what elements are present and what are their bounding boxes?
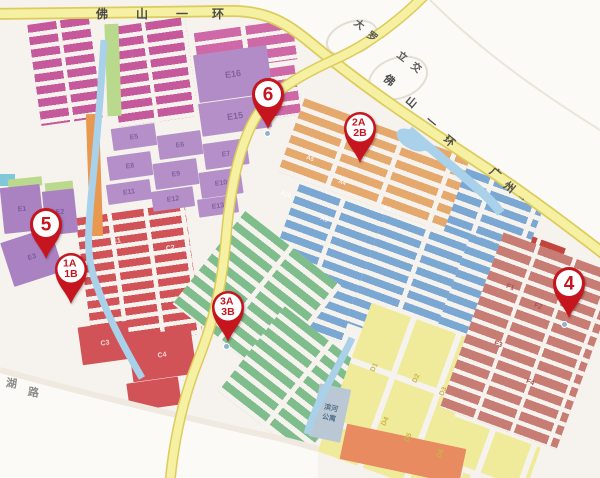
block-e10: E10 — [198, 167, 243, 199]
svg-text:3A 3B: 3A 3B — [220, 296, 236, 319]
block-red-lower — [126, 377, 181, 412]
block-c3: C3 — [78, 321, 133, 366]
marker-4[interactable]: 4 — [549, 263, 589, 319]
block-e11: E11 — [106, 179, 152, 205]
interchange-label-char1: 大 — [351, 15, 368, 33]
bus-stop-icon — [561, 321, 568, 328]
svg-text:6: 6 — [263, 85, 274, 106]
road-label-diag-ring-char2: 山 — [402, 92, 421, 111]
block-e7: E7 — [202, 138, 249, 170]
bus-stop-icon — [223, 343, 230, 350]
bus-stop-icon — [264, 130, 271, 137]
marker-3ab[interactable]: 3A 3B — [208, 287, 248, 343]
block-e9: E9 — [152, 158, 199, 190]
block-label-c4: C4 — [157, 351, 167, 359]
pin-label: 6 — [263, 85, 274, 106]
marker-1ab[interactable]: 1A 1B — [51, 249, 91, 305]
block-label-e12: E12 — [166, 195, 179, 204]
lake-road-label-char2: 路 — [27, 383, 40, 400]
block-e12: E12 — [151, 186, 195, 212]
zoning-map: E16 E15 E5 E6 E7 E8 E9 E10 E11 E12 E13 E… — [0, 0, 600, 478]
block-label-a10: A10 — [279, 190, 291, 199]
pin-label: 5 — [41, 215, 52, 236]
svg-text:1A 1B: 1A 1B — [63, 258, 79, 281]
marker-2ab[interactable]: 2A 2B — [340, 108, 380, 164]
road-label-top-ring-char3: 一 — [176, 5, 188, 22]
block-label-e10: E10 — [214, 179, 227, 188]
block-label-c2: C2 — [166, 244, 176, 252]
binhe-apartment-label-line2: 公寓 — [321, 412, 337, 425]
block-label-c1: C1 — [112, 237, 122, 245]
svg-text:5: 5 — [41, 215, 52, 236]
block-label-e11: E11 — [123, 188, 136, 197]
road-label-diag-ring-char1: 佛 — [380, 70, 399, 89]
road-label-top-ring-char4: 环 — [212, 5, 224, 22]
road-label-diag-ring-char3: 一 — [422, 112, 441, 131]
block-e6: E6 — [157, 130, 204, 160]
road-label-top-ring-char1: 佛 — [96, 5, 108, 22]
interchange-label-char3: 立 — [394, 47, 411, 65]
block-label-e8: E8 — [125, 162, 134, 170]
block-label-c3: C3 — [100, 339, 110, 347]
svg-text:2A 2B: 2A 2B — [352, 117, 368, 140]
block-label-e13: E13 — [211, 202, 224, 211]
road-label-top-ring-char2: 山 — [136, 5, 148, 22]
lake-road-label-char1: 湖 — [5, 374, 18, 391]
block-e5: E5 — [111, 123, 158, 151]
pin-label: 4 — [564, 274, 575, 295]
block-label-e15: E15 — [226, 109, 243, 121]
pin-label-line2: 3B — [221, 306, 235, 318]
block-label-e16: E16 — [224, 68, 241, 80]
block-label-e7: E7 — [221, 150, 230, 158]
block-label-e9: E9 — [171, 170, 180, 178]
district-pink-northwest-a — [27, 16, 105, 126]
marker-6[interactable]: 6 — [248, 74, 288, 130]
interchange-label-char4: 交 — [408, 58, 425, 76]
interchange-label-char2: 罗 — [364, 27, 381, 45]
svg-text:4: 4 — [564, 274, 575, 295]
pin-label-line2: 2B — [353, 127, 367, 139]
pin-label-line2: 1B — [64, 268, 78, 280]
block-c4: C4 — [127, 328, 197, 382]
block-label-e5: E5 — [129, 133, 138, 141]
block-e8: E8 — [107, 151, 154, 181]
interchange-ramp-3 — [430, 0, 600, 130]
block-label-e6: E6 — [175, 141, 184, 149]
